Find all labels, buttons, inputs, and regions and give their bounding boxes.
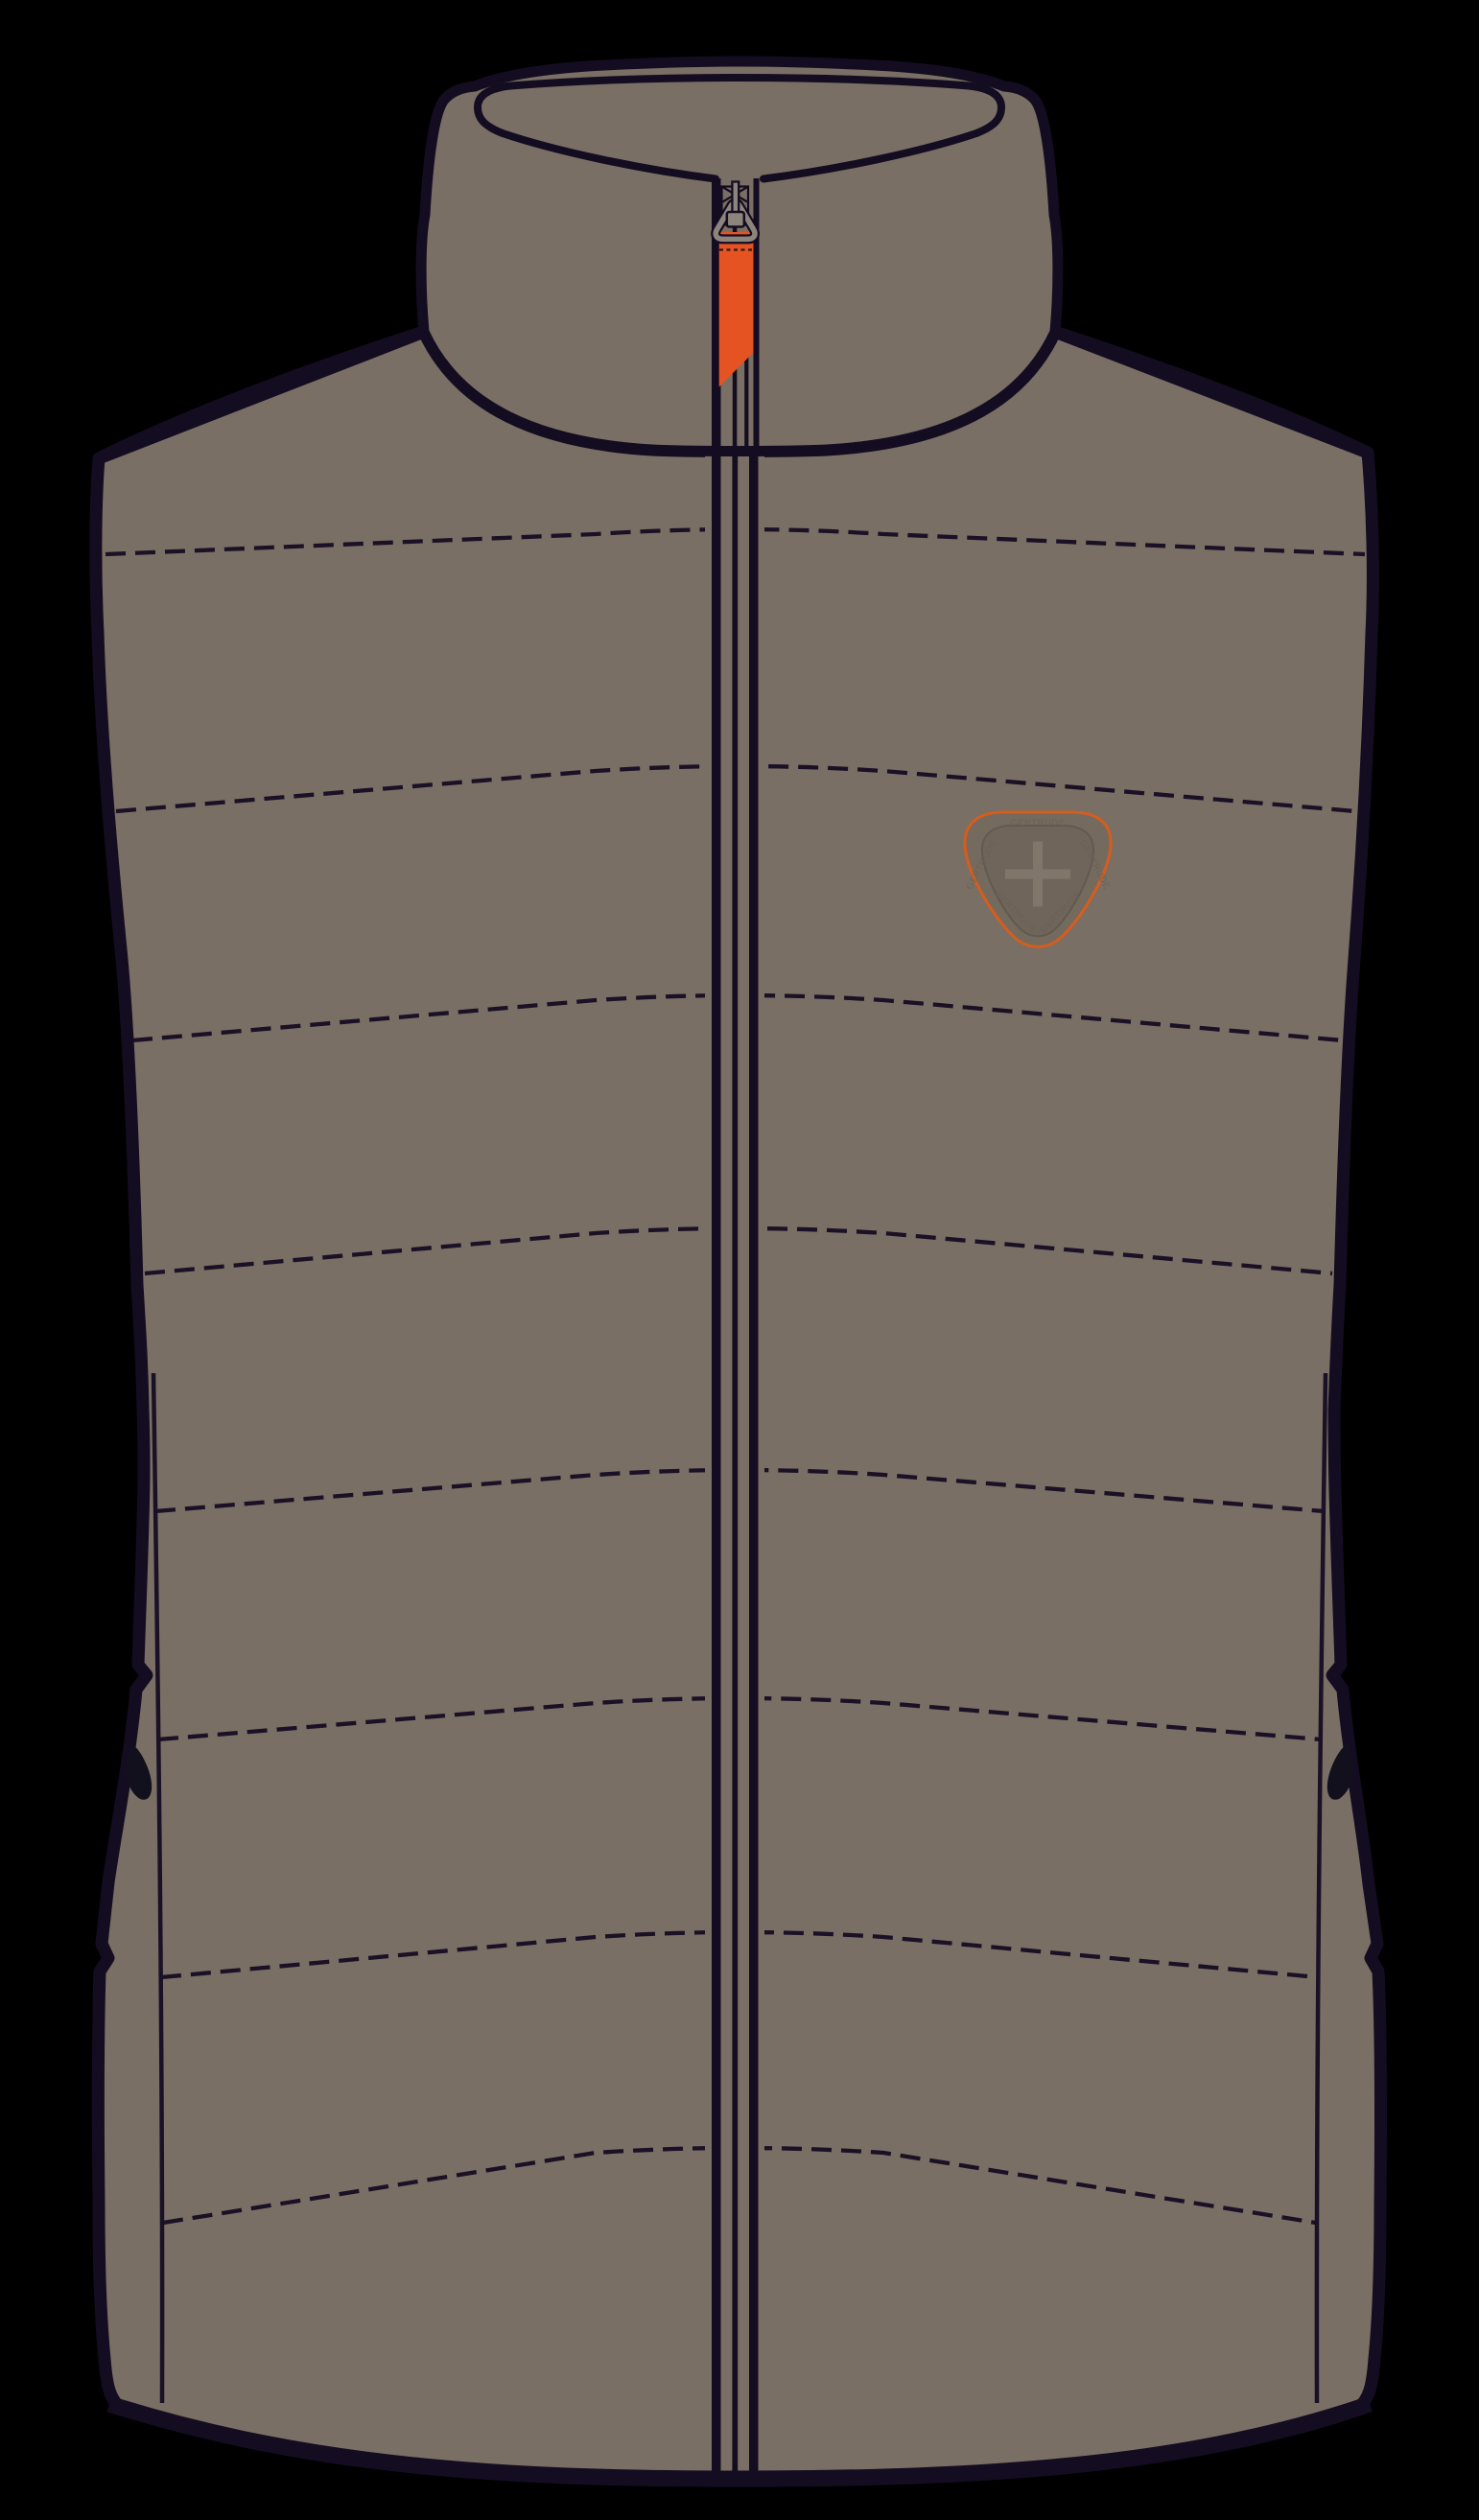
- svg-text:GERTRUDE: GERTRUDE: [1010, 818, 1065, 828]
